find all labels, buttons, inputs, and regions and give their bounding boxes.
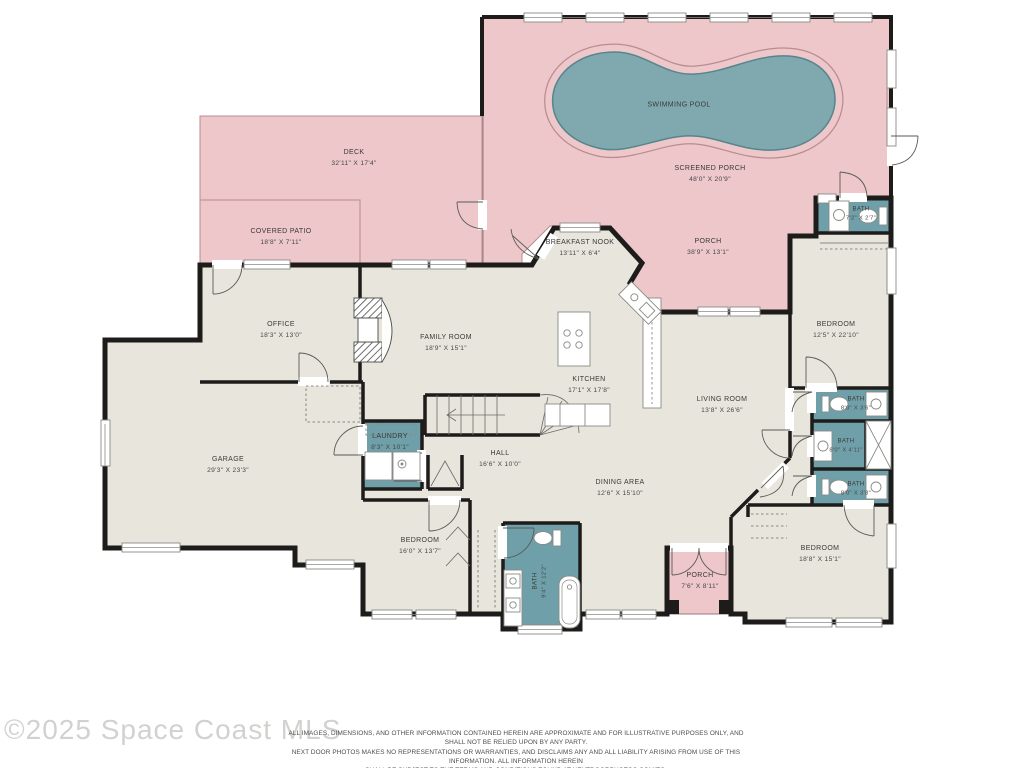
- room-label-laundry: LAUNDRY8'3" X 10'1": [371, 431, 409, 453]
- room-label-kitchen: KITCHEN17'1" X 17'8": [568, 374, 610, 396]
- room-label-screened-porch: SCREENED PORCH48'0" X 20'9": [674, 163, 745, 185]
- room-label-living-room: LIVING ROOM13'8" X 26'6": [697, 394, 748, 416]
- room-label-bath-master: BATH9'4" X 12'2": [532, 564, 549, 598]
- room-label-bath-half: BATH7'2" X 2'7": [846, 206, 876, 223]
- room-label-swimming-pool: SWIMMING POOL: [647, 100, 710, 111]
- room-label-garage: GARAGE29'3" X 23'3": [207, 454, 249, 476]
- room-label-bath-2: BATH8'0" X 4'11": [829, 438, 862, 455]
- room-label-covered-patio: COVERED PATIO18'8" X 7'11": [250, 226, 311, 248]
- room-label-porch-front: PORCH7'6" X 8'11": [681, 570, 718, 592]
- room-label-deck: DECK32'11" X 17'4": [331, 147, 376, 169]
- floor-plan-canvas: SWIMMING POOL SCREENED PORCH48'0" X 20'9…: [0, 0, 1024, 768]
- room-label-porch-rear: PORCH38'9" X 13'1": [687, 236, 729, 258]
- room-label-family-room: FAMILY ROOM18'9" X 15'1": [420, 332, 472, 354]
- room-label-bedroom-bottom-left: BEDROOM16'0" X 13'7": [399, 535, 441, 557]
- disclaimer-line-1: ALL IMAGES, DIMENSIONS, AND OTHER INFORM…: [288, 729, 744, 748]
- room-label-bedroom-right: BEDROOM12'5" X 22'10": [813, 319, 859, 341]
- room-label-hall: HALL16'6" X 10'0": [479, 448, 521, 470]
- room-labels: SWIMMING POOL SCREENED PORCH48'0" X 20'9…: [0, 0, 1024, 768]
- room-label-bath-3: BATH8'0" X 3'8": [841, 481, 871, 498]
- room-label-breakfast-nook: BREAKFAST NOOK13'11" X 6'4": [546, 237, 615, 259]
- room-label-dining-area: DINING AREA12'6" X 15'10": [596, 477, 645, 499]
- room-label-office: OFFICE18'3" X 13'0": [260, 319, 302, 341]
- disclaimer: ALL IMAGES, DIMENSIONS, AND OTHER INFORM…: [288, 729, 744, 768]
- room-label-bedroom-bottom-right: BEDROOM18'8" X 15'1": [799, 543, 841, 565]
- room-label-bath-1: BATH8'0" X 3'6": [841, 396, 871, 413]
- disclaimer-line-2: NEXT DOOR PHOTOS MAKES NO REPRESENTATION…: [288, 748, 744, 767]
